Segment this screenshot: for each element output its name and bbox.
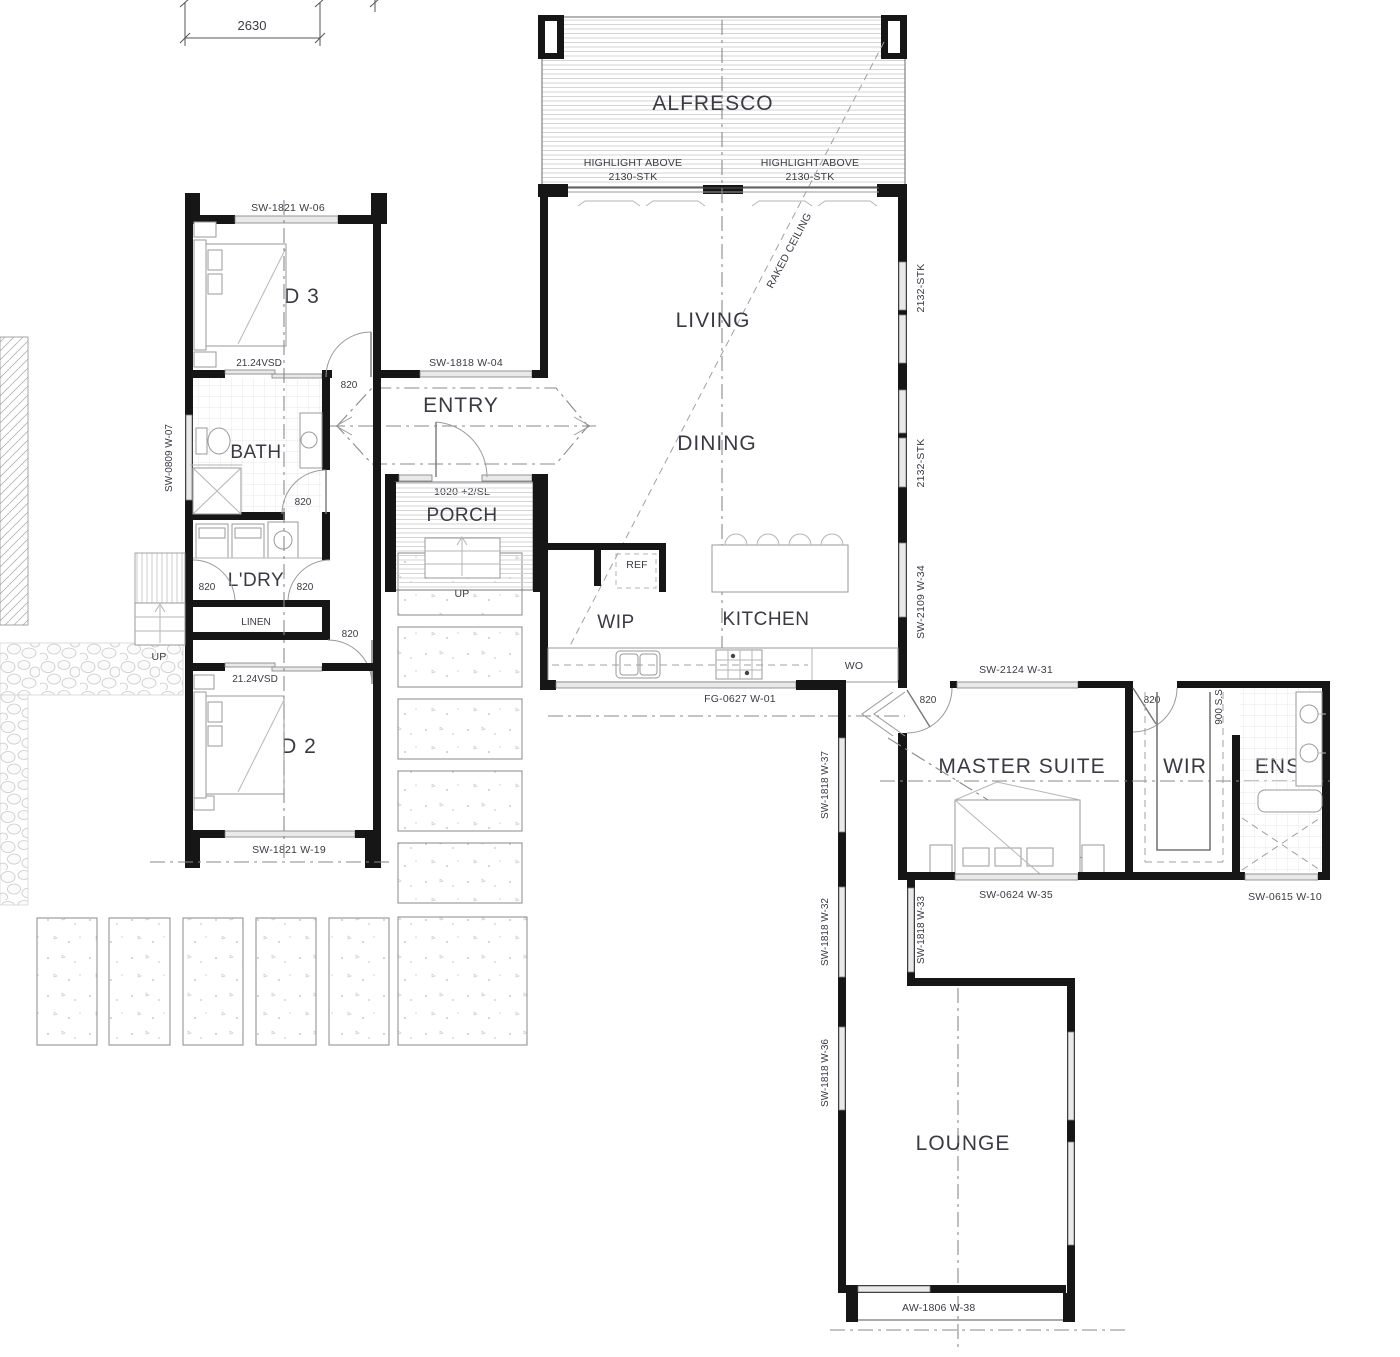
bed3-furniture: [194, 222, 286, 367]
label-alfresco: ALFRESCO: [652, 92, 773, 115]
label-up-side: UP: [152, 651, 167, 663]
label-window-w32: SW-1818 W-32: [820, 898, 831, 966]
dimension-label: 2630: [238, 18, 267, 33]
master-wing: SW-2124 W-31 820 820 900 S.S MASTER SUIT…: [862, 664, 1330, 903]
label-kitchen: KITCHEN: [723, 609, 810, 630]
room-kitchen-wip: REF WIP KITCHEN WO: [540, 534, 905, 716]
label-highlight-left: HIGHLIGHT ABOVE: [584, 157, 683, 169]
floor-plan-svg: 2630 ALFRESCO: [0, 0, 1400, 1357]
label-vsd-bed2: 21.24VSD: [232, 674, 278, 685]
label-window-w06: SW-1821 W-06: [251, 202, 325, 214]
label-living: LIVING: [676, 309, 751, 332]
label-vsd-bed3: 21.24VSD: [236, 358, 282, 369]
label-lounge: LOUNGE: [916, 1132, 1011, 1155]
label-window-w34: SW-2109 W-34: [915, 565, 927, 639]
label-wir: WIR: [1163, 755, 1207, 778]
label-dining: DINING: [677, 432, 757, 455]
label-door-ldry-left: 820: [199, 582, 216, 593]
label-raked-ceiling: RAKED CEILING: [764, 211, 814, 291]
label-window-w10: SW-0615 W-10: [1248, 891, 1322, 903]
label-window-w38: AW-1806 W-38: [902, 1302, 975, 1314]
label-window-w19: SW-1821 W-19: [252, 844, 326, 856]
bed-wing: SW-0809 W-07 SW-1821 W-06 BED 3 21.24VSD…: [150, 193, 392, 868]
label-linen: LINEN: [241, 617, 270, 628]
label-door-ldry-right: 820: [297, 582, 314, 593]
label-highlight-right-stk: 2130-STK: [786, 171, 835, 183]
label-wip: WIP: [597, 612, 634, 633]
master-bed: [930, 782, 1104, 874]
label-stk-lower: 2132-STK: [915, 439, 927, 488]
label-porch: PORCH: [426, 505, 497, 526]
label-door-bed3: 820: [341, 380, 358, 391]
label-window-w07: SW-0809 W-07: [164, 424, 175, 492]
label-window-w36: SW-1818 W-36: [820, 1039, 831, 1107]
label-window-w35: SW-0624 W-35: [979, 889, 1053, 901]
label-wall-oven: WO: [845, 660, 863, 672]
label-bath: BATH: [230, 442, 281, 463]
label-window-w01: FG-0627 W-01: [704, 693, 776, 705]
bed2-furniture: [194, 675, 284, 810]
label-door-hall: 820: [342, 629, 359, 640]
kitchen-island: [712, 534, 848, 592]
ens-fixtures: [1240, 688, 1326, 872]
label-ref: REF: [626, 559, 648, 571]
laundry-fixtures: [193, 522, 322, 558]
garden-bed-hatch: [0, 337, 28, 625]
room-porch: PORCH UP: [385, 482, 548, 600]
room-lounge: LOUNGE AW-1806 W-38: [830, 978, 1128, 1348]
corridor: SW-1818 W-37 SW-1818 W-32 SW-1818 W-36 S…: [820, 688, 927, 1293]
label-highlight-right: HIGHLIGHT ABOVE: [761, 157, 860, 169]
label-window-w37: SW-1818 W-37: [820, 751, 831, 819]
label-door-bath: 820: [295, 497, 312, 508]
room-entry: SW-1818 W-04 ENTRY 1020 +2/SL: [330, 357, 596, 498]
label-highlight-left-stk: 2130-STK: [609, 171, 658, 183]
label-master-suite: MASTER SUITE: [938, 755, 1105, 778]
label-stk-upper: 2132-STK: [915, 264, 927, 313]
label-door-wir: 820: [1144, 695, 1161, 706]
label-up-porch: UP: [455, 588, 470, 600]
label-entry: ENTRY: [423, 394, 499, 417]
paver-row: [37, 918, 389, 1045]
kitchen-bench: WO: [548, 648, 898, 682]
paver-column: [398, 553, 527, 1045]
label-window-w31: SW-2124 W-31: [979, 664, 1053, 676]
label-window-w04: SW-1818 W-04: [429, 357, 503, 369]
stone-path: [0, 643, 183, 905]
floor-plan-canvas: { "plan": { "dimension_top": "2630", "ro…: [0, 0, 1400, 1357]
label-ldry: L'DRY: [228, 570, 284, 591]
dimension-2630: 2630: [180, 0, 380, 46]
label-door-master: 820: [920, 695, 937, 706]
label-window-w33: SW-1818 W-33: [916, 896, 927, 964]
